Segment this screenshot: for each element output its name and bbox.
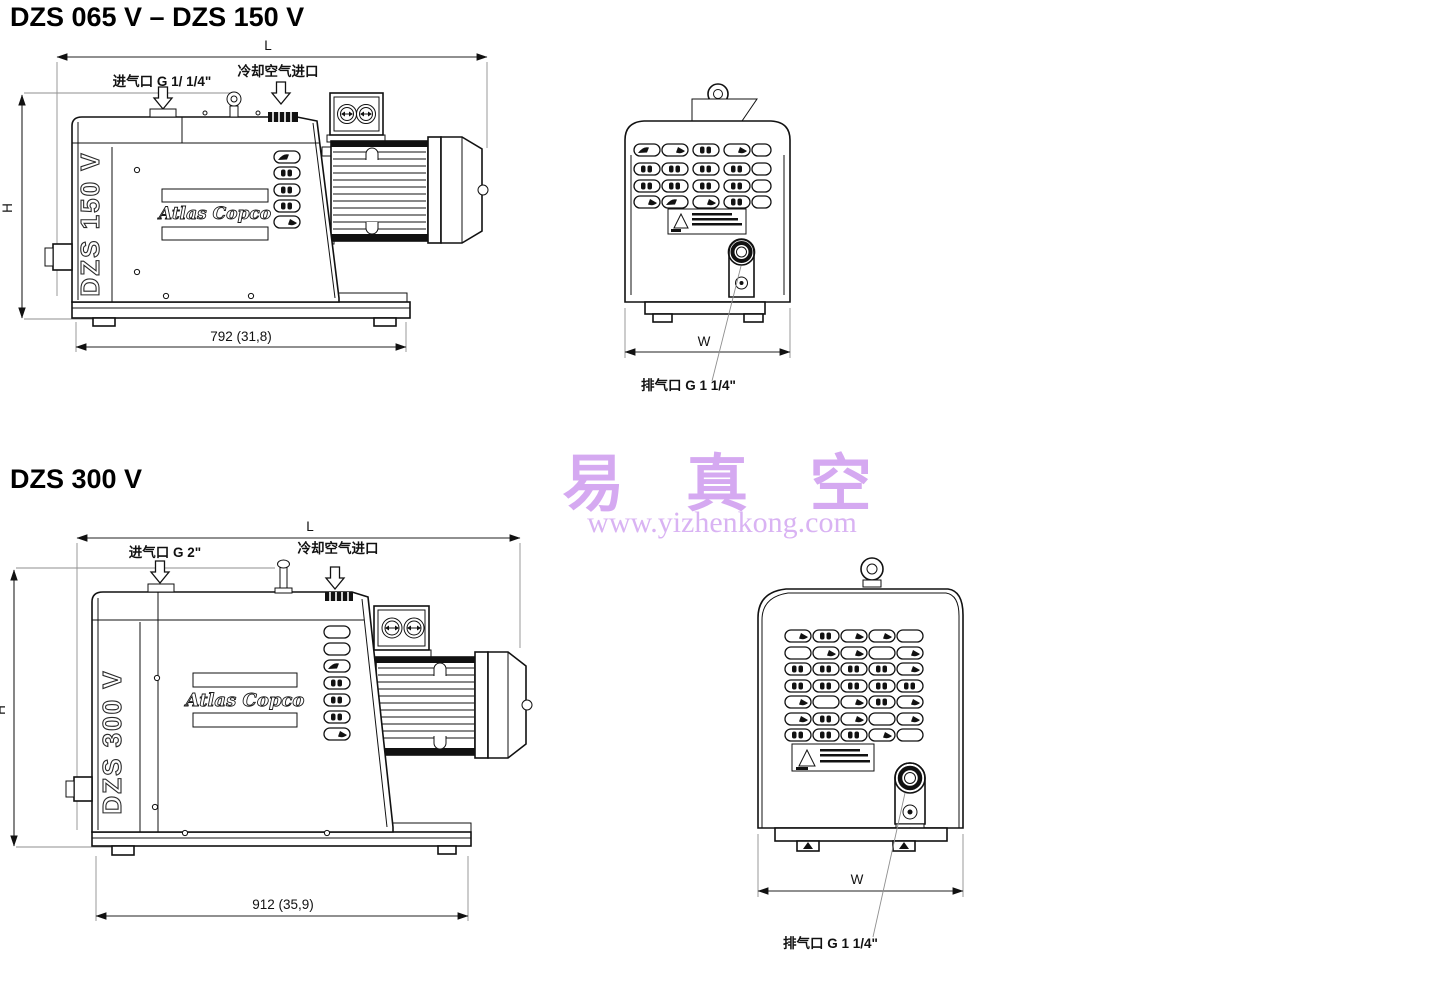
warning-label xyxy=(792,744,874,771)
foot xyxy=(112,846,134,855)
pump-body: DZS 300 V Atlas Copco xyxy=(66,560,393,836)
cooling-vent-hatch xyxy=(325,592,353,601)
terminal-box xyxy=(371,606,431,657)
base-length-label: 792 (31,8) xyxy=(210,329,272,344)
rear-base xyxy=(645,302,765,314)
rating-plate xyxy=(162,227,268,240)
inlet-port-label: 进气口 G 2" xyxy=(129,544,201,560)
model-strip-label: DZS 300 V xyxy=(97,669,127,814)
dipstick xyxy=(280,566,287,588)
lifting-hook-icon xyxy=(366,222,378,234)
exhaust-port xyxy=(895,763,925,838)
vent-slots xyxy=(324,626,350,740)
foot xyxy=(744,314,763,322)
lifting-hook-icon xyxy=(366,148,378,160)
exhaust-port xyxy=(729,239,755,297)
exhaust-port-label: 排气口 G 1 1/4" xyxy=(783,935,878,951)
rating-plate xyxy=(193,713,297,727)
watermark: 易 真 空 www.yizhenkong.com xyxy=(562,447,891,539)
inlet-port xyxy=(148,584,174,592)
base-length-label: 912 (35,9) xyxy=(252,897,314,912)
rating-plate xyxy=(162,189,268,202)
terminal-box xyxy=(327,93,385,142)
technical-drawing-page: 易 真 空 www.yizhenkong.com DZS 065 V – DZS… xyxy=(0,0,1440,996)
side-port xyxy=(53,244,72,270)
brand-logo-text: Atlas Copco xyxy=(184,690,305,711)
model-strip-label: DZS 150 V xyxy=(75,151,105,296)
cooling-air-label: 冷却空气进口 xyxy=(238,63,319,79)
watermark-url: www.yizhenkong.com xyxy=(587,506,857,539)
lifting-hook-icon xyxy=(434,736,446,749)
foot xyxy=(374,318,396,326)
foot xyxy=(653,314,672,322)
dim-width-label: W xyxy=(698,334,711,349)
dim-height-label: H xyxy=(0,203,15,213)
lifting-eye xyxy=(861,558,883,587)
screw-icon xyxy=(134,269,139,274)
vent-grid xyxy=(785,630,923,741)
screw-icon xyxy=(324,830,329,835)
dim-length-label: L xyxy=(264,38,272,53)
section2-title: DZS 300 V xyxy=(10,464,142,494)
foot xyxy=(93,318,115,326)
technical-drawing-canvas: 易 真 空 www.yizhenkong.com DZS 065 V – DZS… xyxy=(0,0,1440,996)
screw-icon xyxy=(248,293,253,298)
brand-logo-text: Atlas Copco xyxy=(157,204,271,224)
section1-title: DZS 065 V – DZS 150 V xyxy=(10,2,304,32)
dim-length-label: L xyxy=(306,519,314,534)
exhaust-port-label: 排气口 G 1 1/4" xyxy=(641,377,736,393)
dim-height-label: H xyxy=(0,705,8,715)
cooling-vent-hatch xyxy=(268,112,298,122)
side-port xyxy=(74,777,92,801)
pump-body: DZS 150 V Atlas Copco xyxy=(45,92,339,302)
screw-icon xyxy=(134,167,139,172)
inlet-port xyxy=(150,109,176,117)
cooling-air-label: 冷却空气进口 xyxy=(298,540,379,556)
vent-slots xyxy=(274,151,300,228)
screw-icon xyxy=(182,830,187,835)
rating-plate xyxy=(193,673,297,687)
foot xyxy=(438,846,456,854)
screw-icon xyxy=(152,804,157,809)
warning-label xyxy=(668,209,746,234)
screw-icon xyxy=(154,675,159,680)
rear-base xyxy=(775,828,947,841)
screw-icon xyxy=(163,293,168,298)
lifting-hook-icon xyxy=(434,663,446,676)
eyebolt-icon xyxy=(227,92,241,106)
dim-width-label: W xyxy=(851,872,864,887)
